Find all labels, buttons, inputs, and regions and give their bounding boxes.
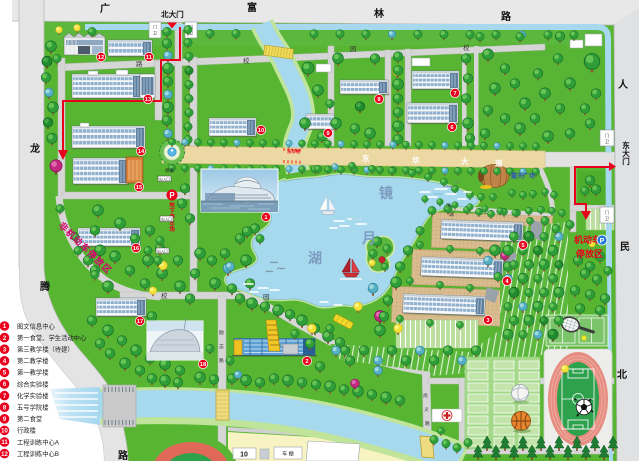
svg-text:校: 校 bbox=[463, 43, 470, 52]
svg-text:10: 10 bbox=[258, 128, 264, 134]
svg-text:人: 人 bbox=[618, 78, 629, 91]
svg-text:门: 门 bbox=[622, 156, 630, 166]
svg-text:2: 2 bbox=[305, 359, 308, 365]
svg-text:民: 民 bbox=[620, 241, 630, 253]
svg-text:出入口: 出入口 bbox=[161, 217, 172, 222]
svg-text:17: 17 bbox=[137, 319, 143, 325]
svg-text:卫: 卫 bbox=[605, 139, 609, 144]
svg-text:镜: 镜 bbox=[379, 185, 393, 201]
svg-text:五号学院楼: 五号学院楼 bbox=[17, 403, 49, 412]
svg-text:地: 地 bbox=[169, 201, 175, 209]
svg-text:志: 志 bbox=[219, 343, 224, 350]
svg-text:露天广场: 露天广场 bbox=[511, 172, 535, 180]
svg-text:腾: 腾 bbox=[39, 280, 51, 293]
svg-text:12: 12 bbox=[98, 55, 104, 61]
svg-text:P: P bbox=[600, 238, 605, 245]
svg-text:校: 校 bbox=[161, 291, 168, 300]
svg-text:7: 7 bbox=[453, 91, 456, 97]
svg-text:出入口: 出入口 bbox=[157, 249, 168, 254]
svg-text:13: 13 bbox=[145, 97, 152, 103]
svg-text:第一食堂、学生活动中心: 第一食堂、学生活动中心 bbox=[17, 333, 87, 342]
svg-text:工程训练中心A: 工程训练中心A bbox=[17, 437, 60, 446]
svg-text:大: 大 bbox=[461, 156, 469, 166]
svg-text:15: 15 bbox=[136, 185, 143, 191]
svg-text:路: 路 bbox=[136, 59, 143, 68]
svg-text:场: 场 bbox=[169, 225, 175, 233]
svg-text:湖: 湖 bbox=[449, 211, 454, 218]
svg-text:10: 10 bbox=[240, 452, 248, 459]
svg-text:月: 月 bbox=[361, 230, 376, 246]
svg-text:东: 东 bbox=[362, 153, 370, 163]
svg-text:11: 11 bbox=[146, 55, 153, 61]
svg-text:卫: 卫 bbox=[605, 216, 609, 221]
svg-text:路: 路 bbox=[501, 10, 512, 23]
svg-text:北大门: 北大门 bbox=[161, 9, 184, 19]
svg-text:图文信息中心: 图文信息中心 bbox=[17, 321, 55, 330]
svg-text:园: 园 bbox=[263, 293, 270, 301]
svg-text:第二食堂: 第二食堂 bbox=[17, 414, 42, 423]
svg-text:门: 门 bbox=[153, 24, 157, 31]
svg-text:北: 北 bbox=[617, 368, 627, 381]
svg-text:11: 11 bbox=[1, 440, 8, 446]
svg-text:路: 路 bbox=[425, 420, 430, 427]
svg-text:滨: 滨 bbox=[446, 202, 451, 209]
svg-text:行政楼: 行政楼 bbox=[17, 426, 37, 435]
svg-text:尚: 尚 bbox=[423, 392, 428, 399]
svg-text:门: 门 bbox=[605, 132, 609, 139]
svg-text:综合实验楼: 综合实验楼 bbox=[17, 379, 49, 388]
svg-text:校: 校 bbox=[243, 56, 250, 65]
svg-text:第一教学楼: 第一教学楼 bbox=[17, 368, 49, 377]
svg-text:卫: 卫 bbox=[153, 31, 157, 36]
svg-text:14: 14 bbox=[138, 149, 145, 155]
svg-text:化学实验楼: 化学实验楼 bbox=[17, 391, 49, 400]
svg-text:出入口: 出入口 bbox=[159, 177, 170, 182]
svg-text:路: 路 bbox=[219, 357, 224, 364]
svg-text:P: P bbox=[169, 191, 175, 200]
svg-text:湖: 湖 bbox=[308, 250, 322, 266]
svg-text:12: 12 bbox=[1, 452, 8, 458]
svg-text:10: 10 bbox=[1, 429, 8, 435]
svg-text:园: 园 bbox=[350, 45, 357, 53]
svg-text:林: 林 bbox=[374, 7, 385, 20]
svg-text:广: 广 bbox=[100, 2, 110, 15]
svg-text:18: 18 bbox=[200, 362, 207, 368]
svg-text:16: 16 bbox=[133, 246, 140, 252]
svg-text:路: 路 bbox=[118, 449, 129, 461]
svg-text:道: 道 bbox=[495, 158, 503, 168]
svg-text:喷泉: 喷泉 bbox=[165, 167, 174, 174]
svg-text:门: 门 bbox=[605, 209, 609, 216]
svg-text:华: 华 bbox=[412, 155, 420, 165]
svg-text:车 棚: 车 棚 bbox=[282, 451, 293, 458]
svg-text:富: 富 bbox=[247, 1, 257, 14]
svg-text:工程训练中心B: 工程训练中心B bbox=[17, 449, 59, 458]
svg-text:下: 下 bbox=[169, 208, 175, 215]
svg-text:第二教学楼: 第二教学楼 bbox=[17, 356, 49, 365]
svg-text:龙: 龙 bbox=[29, 142, 40, 155]
svg-text:东华桥: 东华桥 bbox=[287, 148, 301, 155]
svg-text:第三教学楼（待建）: 第三教学楼（待建） bbox=[17, 345, 74, 354]
svg-text:停放区: 停放区 bbox=[576, 248, 603, 259]
svg-text:义: 义 bbox=[424, 407, 429, 413]
svg-text:励: 励 bbox=[219, 329, 224, 336]
